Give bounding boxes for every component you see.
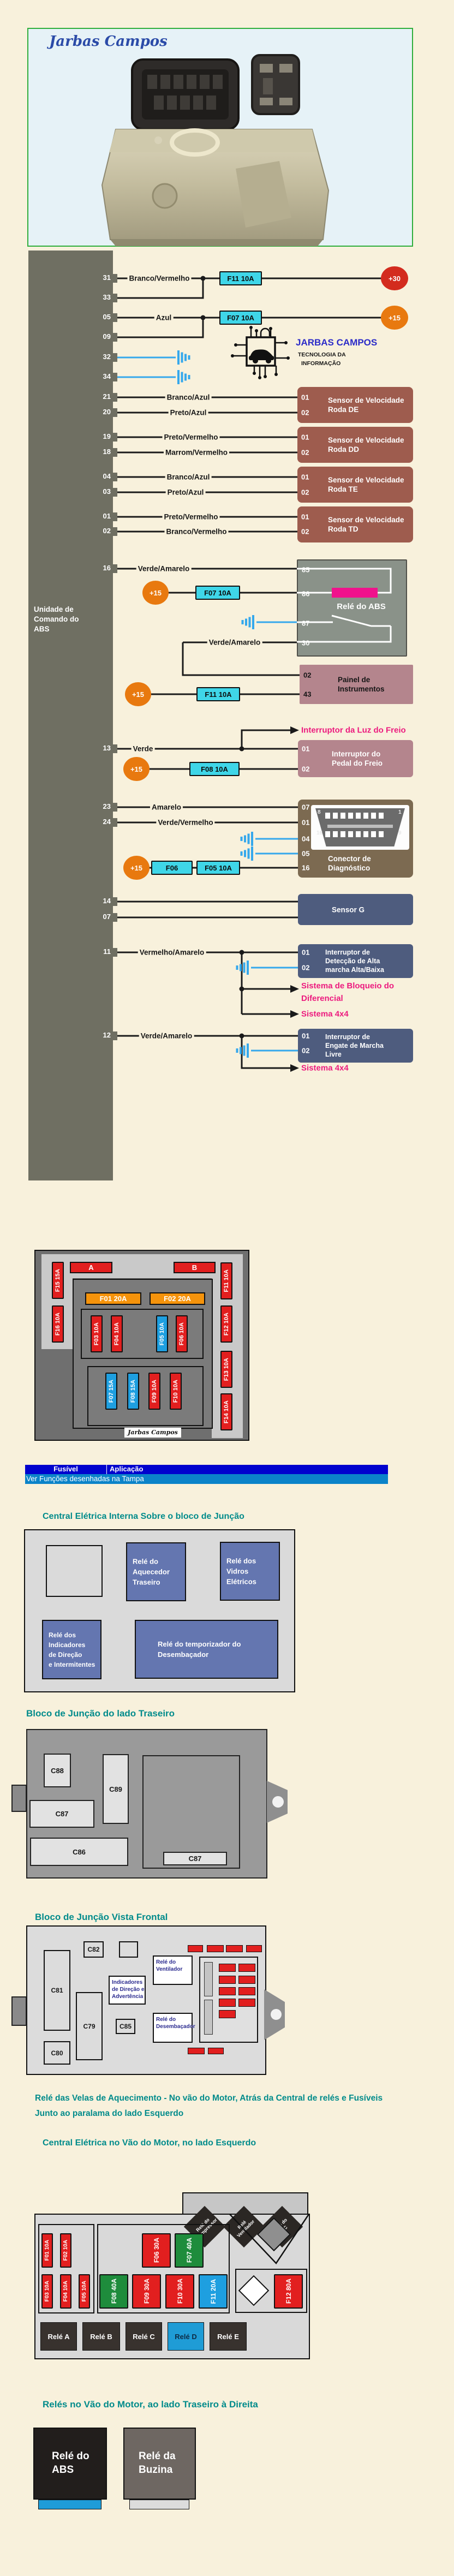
conector-pin-07: 07 (302, 803, 309, 812)
conector-label: Conector deDiagnóstico (328, 854, 410, 873)
abs-pin-stub (113, 313, 117, 322)
front-fuse-slot (219, 1999, 236, 2007)
fuse-F14: F14 10A (220, 1393, 232, 1430)
painel-pin-43: 43 (303, 690, 311, 699)
section-heading: Relé das Velas de Aquecimento - No vão d… (35, 2094, 383, 2103)
front-left-tab (11, 1996, 27, 2026)
fuse-table-col-fusivel: Fusível (25, 1465, 106, 1473)
obd-pin (379, 813, 384, 819)
relay-B: Relé B (82, 2322, 120, 2351)
abs-pin-number: 34 (94, 372, 111, 380)
fuse-F06: F06 10A (176, 1315, 188, 1352)
logo: JARBAS CAMPOS TECNOLOGIA DA INFORMAÇÃO (218, 323, 398, 380)
fuse-F09: F09 10A (148, 1373, 160, 1410)
connector-C87: C87 (163, 1852, 227, 1865)
wire-color-label: Branco/Vermelho (127, 275, 191, 283)
abs-pin-stub (113, 433, 117, 442)
obd-pin (371, 831, 376, 837)
fuse-F10: F10 10A (170, 1373, 182, 1410)
conector-pin-01: 01 (302, 819, 309, 827)
fuse: F07 10A (195, 586, 240, 600)
front-fuse-slot (219, 1987, 236, 1995)
front-relay-label-box: Indicadoresde Direção eAdvertência (109, 1976, 146, 2005)
obd-pin (333, 813, 338, 819)
abs-unit-photo (99, 54, 356, 246)
sensor-td-box: 0102Sensor de VelocidadeRoda TD (297, 506, 413, 542)
rele-do-abs-block: Relé doABS (33, 2428, 107, 2500)
fuse-F12: F12 80A (274, 2274, 303, 2309)
empty-relay-slot (46, 1545, 103, 1597)
fuse-F15: F15 15A (52, 1262, 64, 1299)
abs-pin-stub (113, 294, 117, 302)
photo-panel: Jarbas Campos (27, 28, 413, 247)
front-fuse-slot (208, 2048, 224, 2054)
wire-color-label: Verde/Amarelo (207, 639, 262, 647)
front-fuse-slot (188, 1945, 203, 1952)
fuse-F05: F05 10A (79, 2274, 90, 2309)
front-relay-label-box: Relé doDesembaçador (153, 2013, 193, 2043)
abs-pin-stub (113, 1031, 117, 1040)
fusebox-brand-label: Jarbas Campos (124, 1428, 181, 1438)
abs-pin-stub (113, 913, 117, 922)
relay-base-strip (38, 2500, 101, 2509)
abs-pin-number: 03 (94, 487, 111, 496)
abs-pin-stub (113, 512, 117, 521)
fuse: F11 10A (219, 271, 262, 285)
obd-pin (348, 813, 353, 819)
front-fuse-strip (204, 1962, 213, 1996)
wire-color-label: Verde/Amarelo (139, 1032, 194, 1040)
wire-color-label: Vermelho/Amarelo (138, 949, 206, 957)
abs-pin-number: 02 (94, 527, 111, 535)
detec-label: Interruptor deDetecção de Altamarcha Alt… (325, 948, 410, 974)
abs-pin-number: 16 (94, 564, 111, 572)
page: Jarbas Campos (0, 0, 454, 2576)
abs-pin-stub (113, 333, 117, 342)
front-tab-hole (271, 2009, 282, 2020)
abs-unit-label: Unidade deComando doABS (34, 605, 94, 634)
logo-subtitle-1: TECNOLOGIA DA (298, 351, 346, 358)
fuse-table-col-aplicacao: Aplicação (110, 1465, 143, 1473)
fuse-F11: F11 20A (199, 2274, 228, 2309)
obd-pin (356, 813, 361, 819)
fuse-F06: F06 30A (142, 2233, 171, 2268)
rear-left-tab (11, 1785, 27, 1812)
front-fuse-slot (246, 1945, 262, 1952)
fuse-table-header: Fusível Aplicação (25, 1465, 388, 1474)
fuse-table-row: Ver Funções desenhadas na Tampa (25, 1474, 388, 1484)
abs-pin-stub (113, 803, 117, 812)
abs-pin-number: 05 (94, 313, 111, 321)
front-fuse-slot (238, 1976, 255, 1984)
connector-A: A (70, 1262, 112, 1273)
fuse-F01: F01 10A (41, 2233, 53, 2268)
fuse-F09: F09 30A (132, 2274, 161, 2309)
abs-pin-number: 07 (94, 913, 111, 921)
fuse-F11: F11 10A (220, 1262, 232, 1299)
conector-pin-05: 05 (302, 850, 309, 858)
relay-diamond-label: ReléVentilador (232, 2215, 255, 2238)
engate-pin-02: 02 (302, 1047, 309, 1055)
rele-abs-pin-86: 86 (302, 590, 309, 598)
sensor-dd-box: 0102Sensor de VelocidadeRoda DD (297, 427, 413, 463)
obd-pin (340, 831, 345, 837)
sensor-de-box: 0102Sensor de VelocidadeRoda DE (297, 387, 413, 423)
abs-pin-stub (113, 448, 117, 457)
fuse-F05: F05 10A (156, 1315, 168, 1352)
wire-color-label: Branco/Azul (165, 393, 212, 402)
abs-pin-number: 13 (94, 744, 111, 752)
wire-color-label: Verde (132, 745, 155, 753)
connector-C89: C89 (103, 1754, 129, 1824)
section-heading: Central Elétrica no Vão do Motor, no lad… (43, 2138, 256, 2148)
wire-color-label: Amarelo (150, 803, 183, 812)
front-fuse-slot (238, 1987, 255, 1995)
rele-abs-title: Relé do ABS (328, 602, 394, 611)
front-fuse-slot (238, 1999, 255, 2007)
brand-script: Jarbas Campos (49, 33, 168, 50)
abs-pin-number: 24 (94, 818, 111, 826)
fuse: F11 10A (196, 687, 240, 701)
front-fuse-slot (219, 1964, 236, 1972)
front-fuse-slot (207, 1945, 224, 1952)
abs-pin-number: 11 (94, 947, 111, 956)
sensor-te-pin-01: 01 (301, 473, 309, 481)
wire-color-label: Preto/Vermelho (162, 513, 219, 521)
abs-pin-stub (113, 274, 117, 283)
terminal-plus15: +15 (123, 856, 150, 880)
rele-da-buzina-block: Relé daBuzina (123, 2428, 196, 2500)
sensor-te-label: Sensor de VelocidadeRoda TE (328, 475, 410, 494)
relay-D: Relé D (168, 2322, 204, 2351)
relay-label: Relé daBuzina (139, 2449, 176, 2477)
fuse-F02: F02 20A (150, 1292, 205, 1305)
wire-color-label: Preto/Azul (166, 488, 206, 497)
terminal-plus15: +15 (381, 306, 408, 330)
abs-pin-number: 19 (94, 432, 111, 440)
front-relay-label-box: Relé doVentilador (153, 1955, 193, 1985)
pedal-label: Interruptor doPedal do Freio (332, 749, 410, 768)
abs-pin-number: 21 (94, 392, 111, 401)
wire-color-label: Marrom/Vermelho (164, 449, 229, 457)
logo-chip-car-icon (229, 323, 295, 380)
abs-pin-stub (113, 408, 117, 417)
abs-pin-number: 01 (94, 512, 111, 520)
abs-pin-stub (113, 393, 117, 402)
obd-pin (371, 813, 376, 819)
relay-E: Relé E (210, 2322, 247, 2351)
section-heading: Bloco de Junção do lado Traseiro (26, 1708, 175, 1719)
connector-C86: C86 (30, 1838, 128, 1866)
relay-A: Relé A (40, 2322, 77, 2351)
fuse-F12: F12 10A (220, 1305, 232, 1343)
connector-C81: C81 (44, 1950, 70, 2031)
abs-pin-stub (113, 353, 117, 362)
section-heading: Junto ao paralama do lado Esquerdo (35, 2109, 183, 2119)
rele-abs-pin-30: 30 (302, 639, 309, 647)
abs-unit-label-line: Comando do (34, 615, 94, 624)
connector-C85: C85 (116, 2019, 135, 2034)
engate-box: 0102Interruptor deEngate de MarchaLivre (298, 1029, 413, 1063)
fuse: F05 10A (196, 861, 240, 875)
abs-pin-number: 18 (94, 448, 111, 456)
front-fuse-strip (204, 2000, 213, 2035)
abs-pin-number: 33 (94, 293, 111, 301)
obd-corner-8: 8 (318, 809, 321, 815)
terminal-plus15: +15 (123, 757, 150, 781)
relay-block: Relé do temporizador doDesembaçador (135, 1620, 278, 1679)
front-fuse-slot (219, 2010, 236, 2018)
wire-color-label: Verde/Amarelo (136, 565, 192, 573)
obd-corner-9: 9 (398, 830, 402, 836)
sensor-dd-pin-02: 02 (301, 449, 309, 457)
terminal-plus15: +15 (125, 682, 151, 706)
fuse-F04: F04 10A (60, 2274, 71, 2309)
pedal-pin-01: 01 (302, 745, 309, 753)
fuse: F08 10A (189, 762, 240, 776)
detec-pin-01: 01 (302, 949, 309, 957)
rele-abs-pin-87: 87 (302, 619, 309, 628)
fuse-F16: F16 10A (52, 1305, 64, 1343)
sensor-te-pin-02: 02 (301, 488, 309, 497)
fuse-F08: F08 15A (127, 1373, 139, 1410)
abs-pin-number: 14 (94, 897, 111, 905)
relay-C: Relé C (126, 2322, 162, 2351)
wire-color-label: Azul (154, 314, 174, 322)
fuse-F07: F07 40A (175, 2233, 204, 2268)
sensor-de-pin-01: 01 (301, 393, 309, 402)
obd-pin (363, 813, 368, 819)
detec-box: 0102Interruptor deDetecção de Altamarcha… (298, 944, 413, 978)
abs-pin-number: 09 (94, 332, 111, 341)
pedal-box: 0102Interruptor doPedal do Freio (298, 740, 413, 777)
section-heading: Relés no Vão do Motor, ao lado Traseiro … (43, 2399, 258, 2410)
pedal-pin-02: 02 (302, 765, 309, 773)
sensor-td-pin-02: 02 (301, 528, 309, 536)
fuse: F07 10A (219, 311, 262, 325)
callout: Sistema 4x4 (301, 1062, 349, 1075)
abs-pin-number: 32 (94, 353, 111, 361)
obd-pin (379, 831, 384, 837)
wire-color-label: Branco/Azul (165, 473, 212, 481)
abs-pin-number: 04 (94, 472, 111, 480)
painel-label: Painel deInstrumentos (338, 675, 410, 694)
relay-block: Relé doAquecedorTraseiro (126, 1542, 186, 1601)
painel-pin-02: 02 (303, 671, 311, 679)
fusebox-subpanel (87, 1366, 204, 1426)
fuse-F03: F03 10A (91, 1315, 103, 1352)
abs-pin-stub (113, 527, 117, 536)
painel-box: 0243Painel deInstrumentos (300, 665, 413, 704)
section-heading: Bloco de Junção Vista Frontal (35, 1912, 168, 1923)
sensor-td-label: Sensor de VelocidadeRoda TD (328, 515, 410, 534)
abs-pin-stub (113, 473, 117, 481)
obd-connector: 81169 (311, 805, 409, 850)
abs-pin-number: 20 (94, 408, 111, 416)
obd-pin (340, 813, 345, 819)
abs-pin-stub (113, 373, 117, 381)
sensor-g-label: Sensor G (332, 905, 410, 914)
callout: Sistema de Bloqueio doDiferencial (301, 980, 394, 1005)
connector-C80: C80 (44, 2041, 70, 2065)
sensor-g-box: Sensor G (298, 894, 413, 925)
detec-pin-02: 02 (302, 964, 309, 972)
rele-abs-pin-85: 85 (302, 566, 309, 574)
obd-corner-1: 1 (398, 809, 402, 815)
obd-pin (333, 831, 338, 837)
obd-pin (325, 813, 330, 819)
sensor-dd-label: Sensor de VelocidadeRoda DD (328, 436, 410, 454)
relay-block: Relé dosIndicadoresde Direçãoe Intermite… (42, 1620, 101, 1679)
abs-pin-stub (113, 564, 117, 573)
abs-pin-number: 23 (94, 802, 111, 810)
abs-pin-number: 31 (94, 273, 111, 282)
connector-B: B (174, 1262, 216, 1273)
connector-C82: C82 (83, 1941, 104, 1958)
fuse-F04: F04 10A (111, 1315, 123, 1352)
callout: Sistema 4x4 (301, 1008, 349, 1021)
column-separator (106, 1465, 107, 1474)
connector-C88: C88 (44, 1754, 71, 1787)
sensor-de-label: Sensor de VelocidadeRoda DE (328, 396, 410, 414)
connector-C79: C79 (76, 1992, 103, 2060)
relay-block: Relé dosVidrosElétricos (220, 1542, 280, 1601)
fuse-F10: F10 30A (165, 2274, 194, 2309)
obd-pin (356, 831, 361, 837)
obd-pin (348, 831, 353, 837)
front-fuse-slot (188, 2048, 205, 2054)
section-heading: Central Elétrica Interna Sobre o bloco d… (43, 1512, 244, 1522)
terminal-plus15: +15 (142, 581, 169, 605)
wire-color-label: Preto/Vermelho (162, 433, 219, 442)
sensor-te-box: 0102Sensor de VelocidadeRoda TE (297, 467, 413, 503)
abs-pin-stub (113, 897, 117, 906)
logo-title: JARBAS CAMPOS (296, 337, 377, 348)
relay-label: Relé doABS (52, 2449, 89, 2477)
abs-unit-label-line: Unidade de (34, 605, 94, 615)
sensor-td-pin-01: 01 (301, 513, 309, 521)
abs-unit-label-line: ABS (34, 624, 94, 634)
rear-tab-hole (272, 1796, 284, 1808)
fuse-F07: F07 15A (105, 1373, 117, 1410)
wire-color-label: Verde/Vermelho (156, 819, 214, 827)
terminal-plus30: +30 (381, 266, 408, 290)
callout: Interruptor da Luz do Freio (301, 724, 406, 737)
relay-base-strip (129, 2500, 189, 2509)
front-fuse-slot (238, 1964, 255, 1972)
fuse-F01: F01 20A (85, 1292, 141, 1305)
front-empty-slot (119, 1941, 138, 1958)
front-fuse-slot (219, 1976, 236, 1984)
fuse-F02: F02 10A (60, 2233, 71, 2268)
fuse-F08: F08 40A (99, 2274, 128, 2309)
conector-pin-16: 16 (302, 864, 309, 872)
conector-pin-04: 04 (302, 835, 309, 843)
abs-pin-stub (113, 488, 117, 497)
front-fuse-slot (226, 1945, 243, 1952)
abs-pin-number: 12 (94, 1031, 111, 1039)
fuse-F13: F13 10A (220, 1351, 232, 1388)
obd-center-slot (327, 825, 393, 828)
connector-C87: C87 (29, 1800, 94, 1828)
obd-pin (325, 831, 330, 837)
abs-pin-stub (113, 948, 117, 957)
abs-pin-stub (113, 744, 117, 753)
abs-pin-stub (113, 818, 117, 827)
fuse-F03: F03 10A (41, 2274, 53, 2309)
abs-unit-block (28, 251, 113, 1180)
wire-color-label: Preto/Azul (169, 409, 208, 417)
sensor-de-pin-02: 02 (301, 409, 309, 417)
obd-corner-16: 16 (316, 830, 322, 836)
wire-color-label: Branco/Vermelho (164, 528, 228, 536)
engate-label: Interruptor deEngate de MarchaLivre (325, 1033, 410, 1059)
obd-pin (363, 831, 368, 837)
logo-subtitle-2: INFORMAÇÃO (301, 360, 340, 367)
fuse: F06 (151, 861, 193, 875)
sensor-dd-pin-01: 01 (301, 433, 309, 442)
fuse-table: Fusível Aplicação Ver Funções desenhadas… (25, 1465, 388, 1484)
engate-pin-01: 01 (302, 1032, 309, 1040)
